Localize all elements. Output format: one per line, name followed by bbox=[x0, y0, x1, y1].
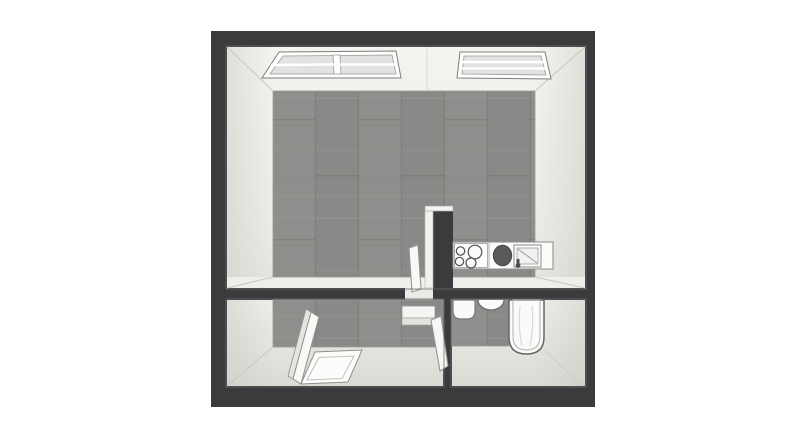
window-left[interactable] bbox=[262, 51, 401, 78]
burner bbox=[455, 257, 463, 265]
window-bar bbox=[272, 65, 333, 66]
sink-basin bbox=[493, 245, 511, 265]
partition-stub-face bbox=[425, 211, 433, 288]
desk-front bbox=[402, 318, 435, 325]
floorplan-render bbox=[0, 0, 800, 433]
basin-body bbox=[453, 300, 475, 319]
divider-wall-face-strip bbox=[227, 277, 585, 288]
burner bbox=[468, 245, 482, 259]
tub-rim bbox=[509, 300, 544, 354]
floorplan-canvas bbox=[0, 0, 800, 433]
kitchen-counter[interactable] bbox=[453, 242, 553, 269]
burner bbox=[456, 247, 464, 255]
burner bbox=[466, 258, 476, 268]
cooktop[interactable] bbox=[455, 244, 488, 269]
bathtub[interactable] bbox=[509, 300, 544, 354]
faucet-base bbox=[516, 263, 521, 268]
west-wall-face bbox=[227, 47, 273, 288]
desk[interactable] bbox=[402, 306, 435, 325]
partition-stub bbox=[425, 206, 453, 288]
partition-stub-cap bbox=[425, 206, 453, 211]
window-right[interactable] bbox=[457, 52, 551, 79]
west-wall-face bbox=[227, 300, 273, 386]
partition-stub-top bbox=[433, 211, 453, 288]
wash-basin[interactable] bbox=[453, 300, 475, 319]
kitchen-sink[interactable] bbox=[493, 245, 541, 268]
window-glass bbox=[462, 56, 546, 75]
desk-top bbox=[402, 306, 435, 318]
bathroom bbox=[452, 290, 585, 386]
